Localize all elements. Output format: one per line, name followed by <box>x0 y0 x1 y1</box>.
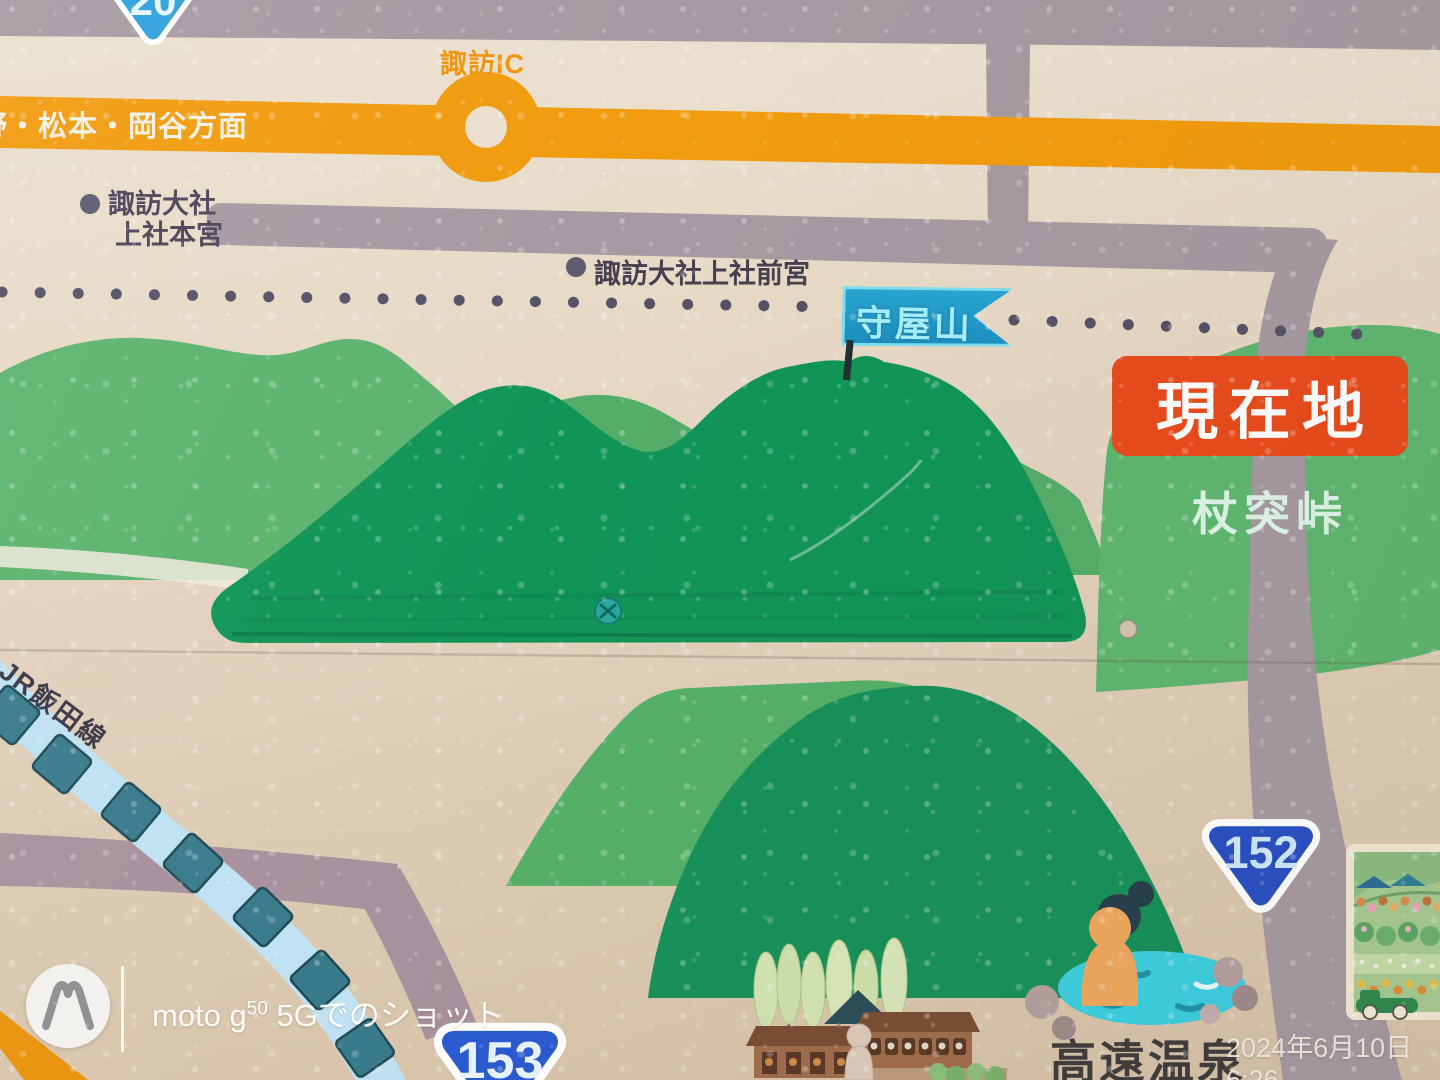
peak-flag: 守屋山 <box>841 284 1013 350</box>
location-dot-icon <box>566 257 586 277</box>
hot-spring-label: 高遠温泉 <box>1050 1026 1246 1080</box>
map-signboard-photo: 20 諏訪IC 野・松本・岡谷方面 諏訪大社 上社本宮 諏訪大社上社前宮 守屋山… <box>0 0 1440 1080</box>
trail-dotted-line <box>2 292 1382 335</box>
route-shield-152: 152 <box>1197 813 1325 917</box>
peak-name: 守屋山 <box>855 294 973 349</box>
temple-building-left <box>746 1026 860 1078</box>
statue <box>845 1024 873 1080</box>
shrine-maemiya-label: 諏訪大社上社前宮 <box>566 252 810 291</box>
watermark-timestamp: 2024年6月10日 6:26 <box>1226 1026 1440 1080</box>
flower-field-card <box>1346 844 1440 1020</box>
watermark-separator <box>121 966 124 1052</box>
shrine-honmiya-label: 諏訪大社 上社本宮 <box>80 189 223 251</box>
top-road <box>0 0 1440 50</box>
current-location-badge: 現在地 <box>1112 356 1408 456</box>
route-number: 20 <box>106 0 200 25</box>
route-shield-20: 20 <box>106 0 200 50</box>
route-number: 152 <box>1197 827 1325 879</box>
location-dot-icon <box>80 194 100 214</box>
watermark-brand-text: moto g50 5Gでのショット <box>152 990 504 1035</box>
pass-name-label: 杖突峠 <box>1192 478 1348 544</box>
route-number: 153 <box>428 1031 572 1080</box>
interchange-label: 諏訪IC <box>440 42 525 81</box>
motorola-logo-icon <box>26 964 110 1048</box>
direction-label: 野・松本・岡谷方面 <box>0 103 248 145</box>
